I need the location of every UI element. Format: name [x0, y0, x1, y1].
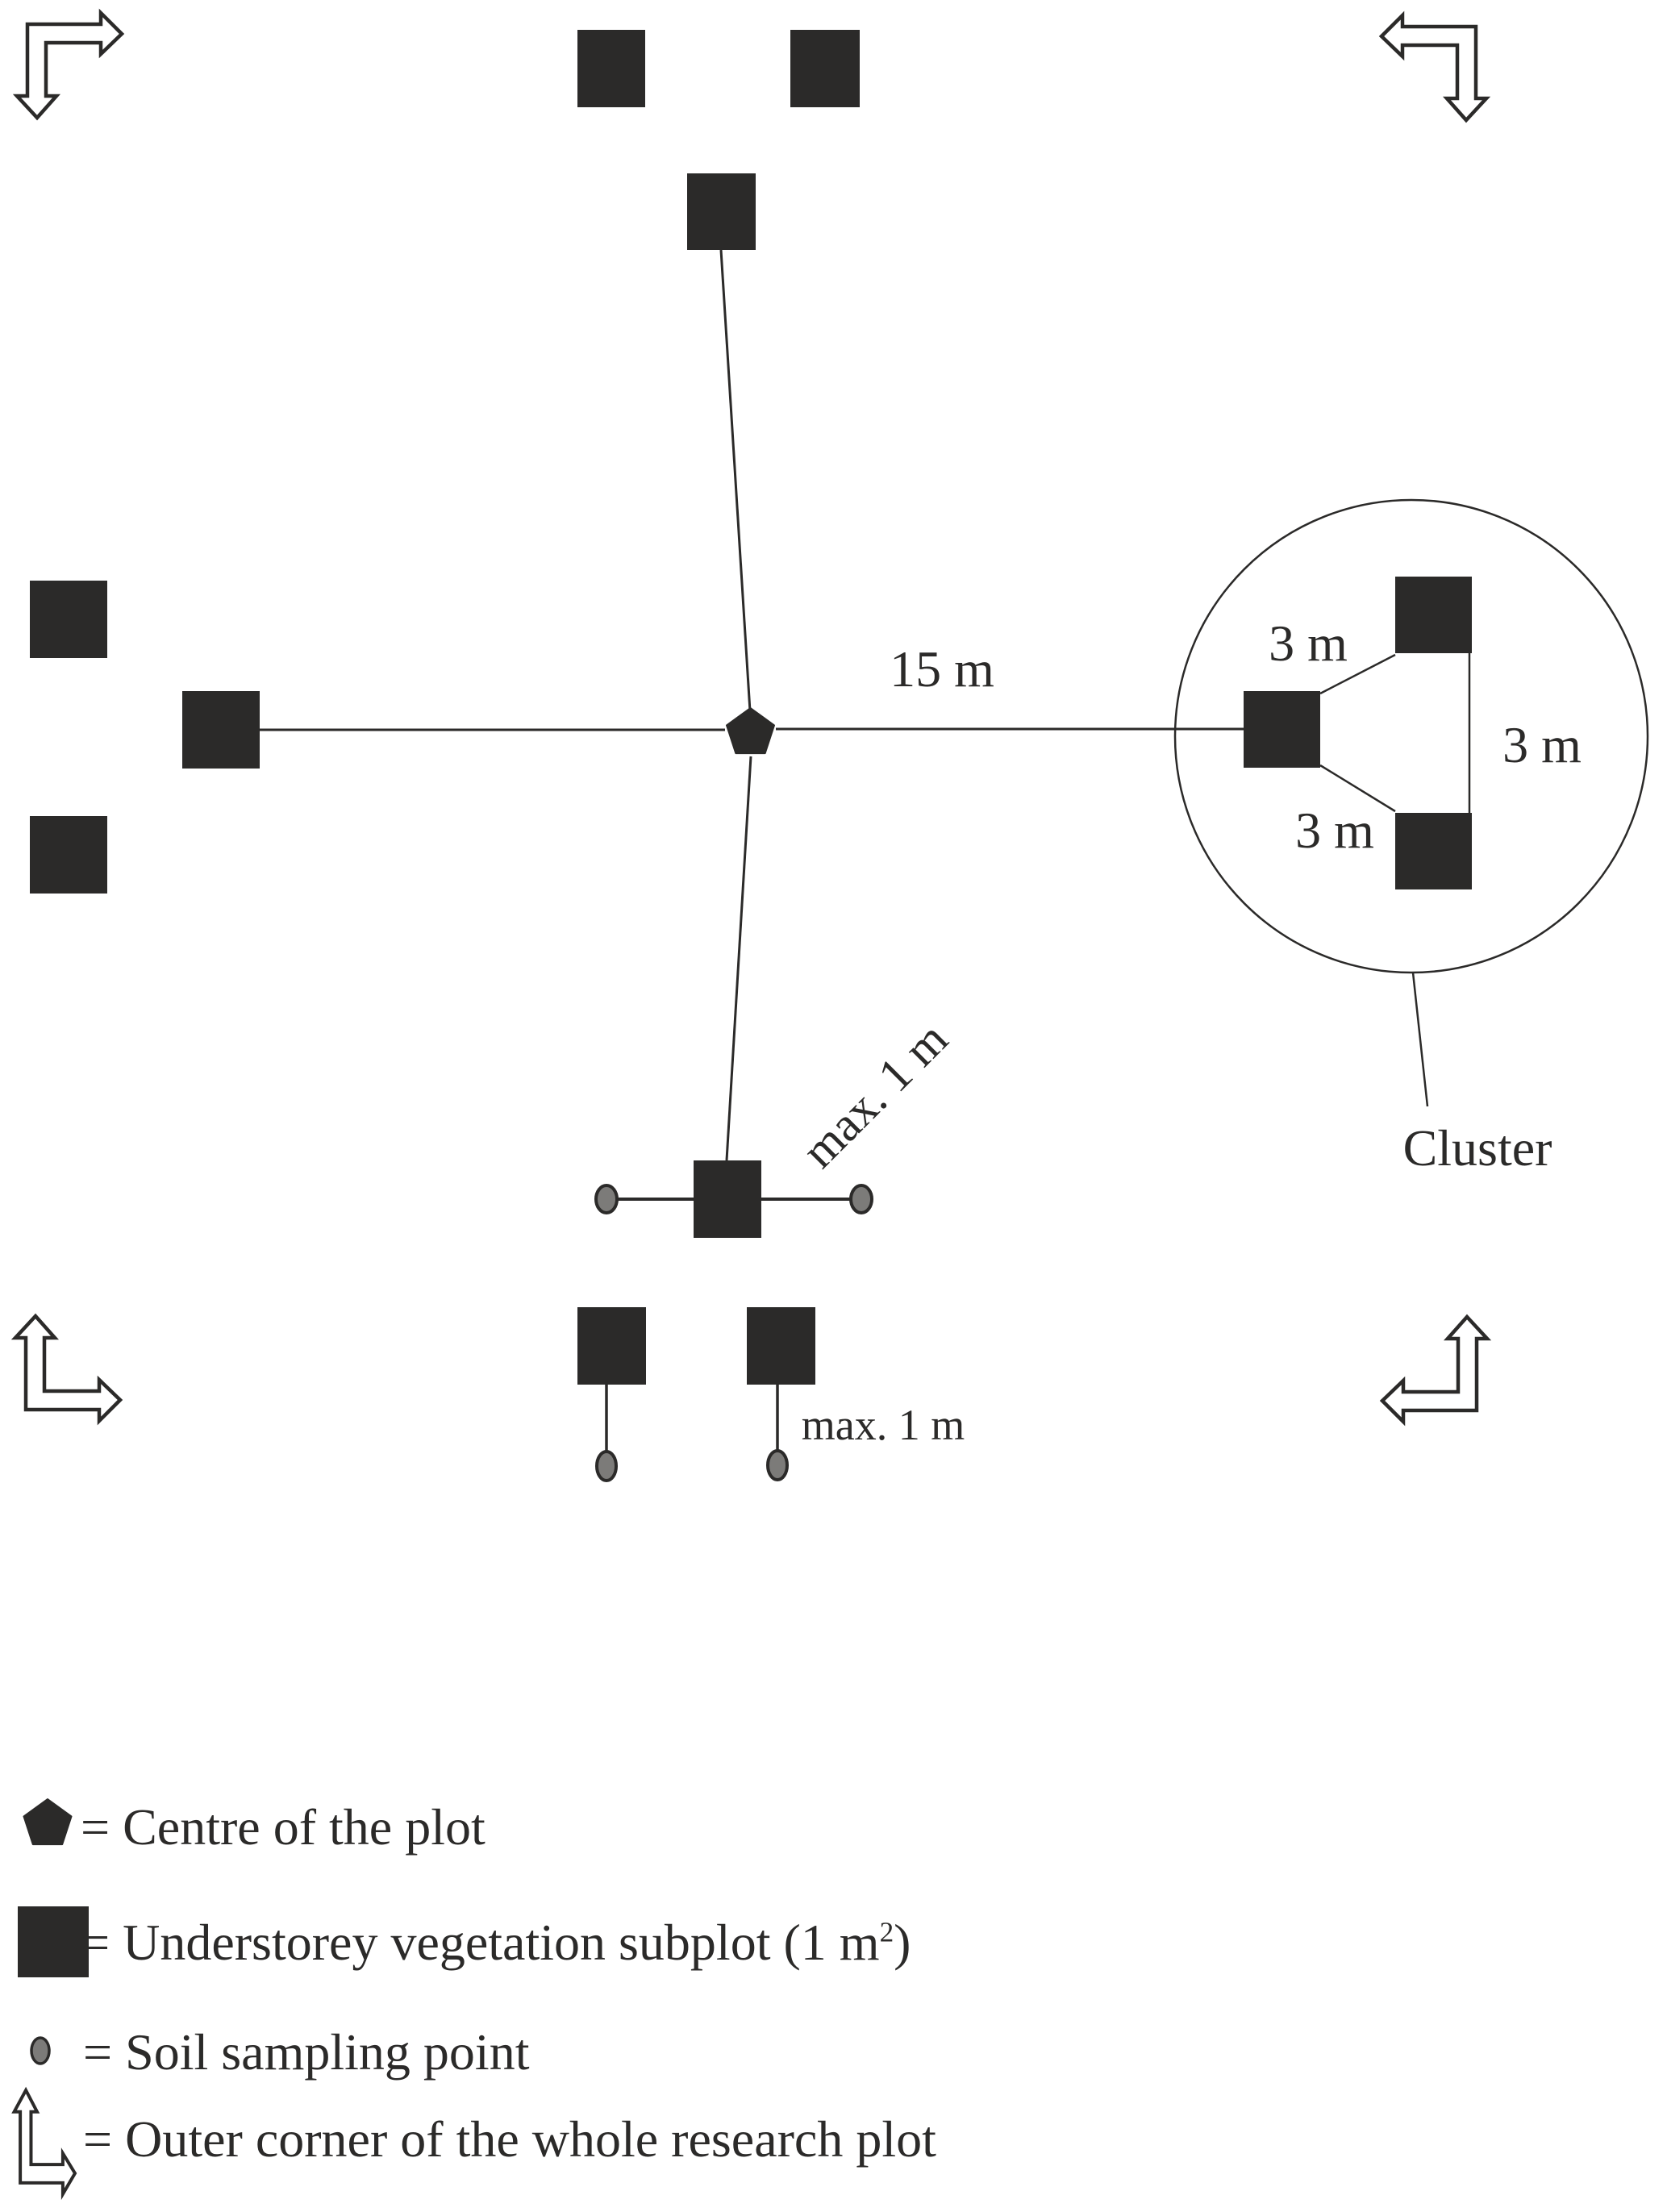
corner-arrow-top-right-icon: [1382, 15, 1486, 120]
soil-point-west-icon: [596, 1185, 617, 1213]
west-subplots: [30, 581, 260, 894]
subplot-bottom-left: [577, 1307, 646, 1385]
south-transect-line: [727, 756, 751, 1160]
subplot-west-top: [30, 581, 107, 658]
label-cluster: Cluster: [1403, 1118, 1552, 1178]
north-subplots: [577, 30, 860, 250]
corner-arrow-bottom-left-icon: [15, 1316, 120, 1421]
corner-arrow-bottom-right-icon: [1382, 1317, 1487, 1422]
label-distance-15m: 15 m: [890, 639, 994, 699]
bottom-soil-group: [577, 1307, 815, 1481]
label-distance-3m-top: 3 m: [1269, 614, 1348, 673]
transect-lines: [260, 250, 1244, 1160]
subplot-north-right: [790, 30, 860, 107]
legend-row-subplot-label: = Understorey vegetation subplot (1 m2): [81, 1913, 911, 1972]
subplot-west-bottom: [30, 816, 107, 894]
legend-row-centre-label: = Centre of the plot: [81, 1798, 486, 1857]
legend-soil-point-icon: [31, 2038, 49, 2064]
label-max-1m-bottom: max. 1 m: [802, 1400, 965, 1450]
subplot-bottom-right: [747, 1307, 815, 1385]
subplot-cluster-centre: [1244, 691, 1320, 768]
legend-square-icon: [18, 1906, 89, 1977]
subplot-south-centre: [694, 1160, 761, 1238]
legend-subplot-suffix: ): [894, 1914, 911, 1971]
legend-pentagon-icon: [24, 1799, 72, 1844]
subplot-cluster-top: [1395, 577, 1472, 653]
label-distance-3m-bottom: 3 m: [1295, 801, 1374, 860]
north-transect-line: [721, 250, 750, 711]
legend-corner-arrow-icon: [15, 2090, 75, 2194]
subplot-north-left: [577, 30, 645, 107]
subplot-north-centre: [687, 173, 756, 250]
legend-row-soil-label: = Soil sampling point: [83, 2022, 529, 2082]
corner-arrow-top-left-icon: [17, 13, 122, 118]
legend-subplot-superscript: 2: [880, 1917, 894, 1948]
legend-symbols: [15, 1799, 89, 2194]
soil-point-bottom-right-icon: [768, 1451, 787, 1480]
plot-centre-pentagon: [727, 708, 774, 753]
soil-point-east-icon: [851, 1185, 872, 1213]
cluster-leader-line: [1413, 973, 1427, 1106]
soil-point-bottom-left-icon: [597, 1452, 616, 1481]
legend-row-corner-label: = Outer corner of the whole research plo…: [83, 2110, 936, 2169]
subplot-west-centre: [182, 691, 260, 769]
label-distance-3m-right: 3 m: [1502, 715, 1582, 775]
research-plot-figure: 15 m 3 m 3 m 3 m Cluster max. 1 m max. 1…: [0, 0, 1667, 2212]
subplot-cluster-bottom: [1395, 813, 1472, 889]
legend-subplot-prefix: = Understorey vegetation subplot (1 m: [81, 1914, 880, 1971]
